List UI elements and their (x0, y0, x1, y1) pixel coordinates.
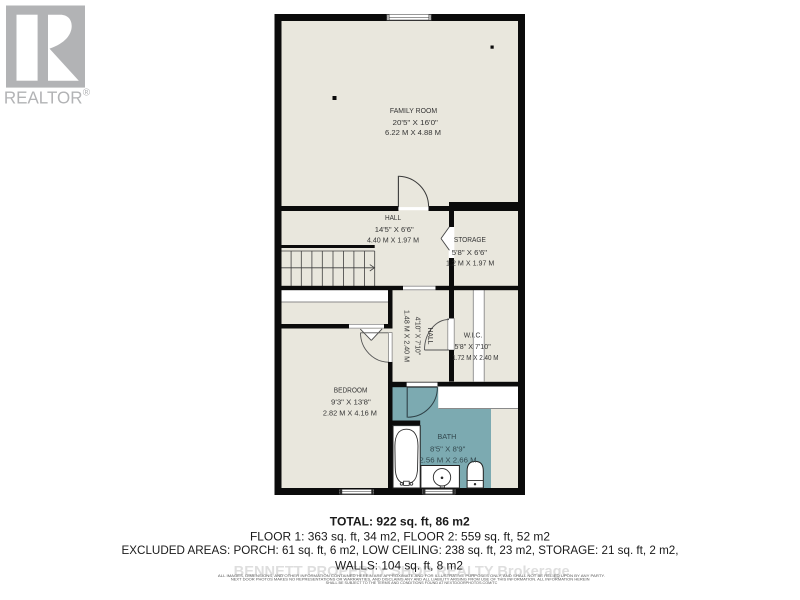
svg-text:HALL: HALL (426, 328, 435, 346)
svg-text:2.82 M X 4.16 M: 2.82 M X 4.16 M (323, 408, 377, 417)
svg-text:2.56 M X 2.66 M: 2.56 M X 2.66 M (419, 455, 476, 464)
svg-text:BEDROOM: BEDROOM (334, 386, 368, 395)
svg-text:WALLS: 104 sq. ft, 8 m2: WALLS: 104 sq. ft, 8 m2 (335, 559, 463, 573)
svg-text:6.22 M X 4.88 M: 6.22 M X 4.88 M (385, 128, 441, 137)
svg-text:5'8" X 6'6": 5'8" X 6'6" (452, 248, 488, 257)
svg-text:14'5" X 6'6": 14'5" X 6'6" (375, 225, 414, 234)
svg-text:1.72 M X 2.40 M: 1.72 M X 2.40 M (452, 353, 498, 362)
svg-text:FLOOR 1: 363 sq. ft, 34 m2, FL: FLOOR 1: 363 sq. ft, 34 m2, FLOOR 2: 559… (250, 530, 550, 544)
svg-text:8'5" X 8'9": 8'5" X 8'9" (430, 445, 466, 454)
svg-text:1.2 M X 1.97 M: 1.2 M X 1.97 M (446, 258, 494, 267)
svg-text:STORAGE: STORAGE (454, 235, 486, 244)
svg-text:EXCLUDED AREAS: PORCH: 61 sq.: EXCLUDED AREAS: PORCH: 61 sq. ft, 6 m2, … (122, 543, 679, 557)
svg-text:W.I.C.: W.I.C. (464, 331, 483, 340)
svg-text:20'5" X 16'0": 20'5" X 16'0" (393, 118, 439, 127)
svg-text:BATH: BATH (437, 432, 456, 441)
svg-text:®: ® (83, 88, 91, 99)
svg-text:9'3" X 13'8": 9'3" X 13'8" (331, 398, 371, 407)
svg-text:4'10" X 7'10": 4'10" X 7'10" (414, 317, 423, 356)
svg-text:1.48 M X 2.40 M: 1.48 M X 2.40 M (402, 310, 411, 362)
svg-text:5'8" X 7'10": 5'8" X 7'10" (454, 342, 491, 351)
svg-text:SHALL BE SUBJECT TO THE TERMS: SHALL BE SUBJECT TO THE TERMS AND CONDIT… (326, 581, 498, 585)
svg-text:4.40 M X 1.97 M: 4.40 M X 1.97 M (367, 235, 419, 244)
svg-text:TOTAL: 922 sq. ft, 86 m2: TOTAL: 922 sq. ft, 86 m2 (330, 515, 470, 529)
svg-text:FAMILY ROOM: FAMILY ROOM (390, 106, 437, 115)
svg-text:REALTOR: REALTOR (4, 87, 83, 107)
svg-text:HALL: HALL (385, 213, 402, 222)
